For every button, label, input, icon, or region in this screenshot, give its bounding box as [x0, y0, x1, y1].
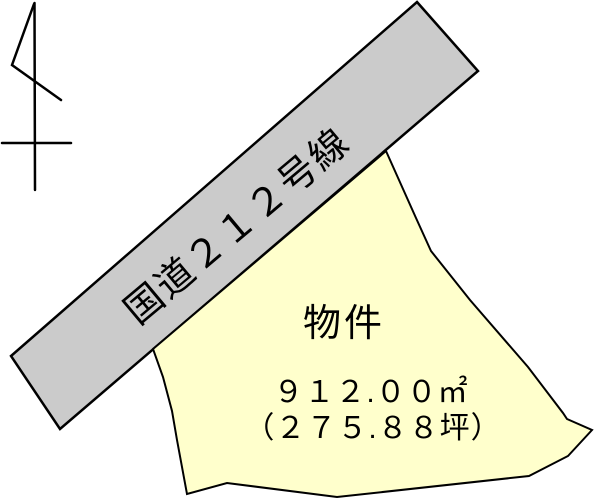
parcel-label: 物件: [303, 303, 385, 345]
north-arrow-shaft: [35, 3, 36, 190]
parcel-area-m2: ９１２.００㎡: [273, 376, 468, 409]
parcel-area-tsubo: （２７５.８８坪）: [244, 412, 501, 445]
land-plot-figure: 国道２１２号線 物件 ９１２.００㎡ （２７５.８８坪）: [0, 0, 600, 500]
plot-drawing: 国道２１２号線 物件 ９１２.００㎡ （２７５.８８坪）: [0, 0, 600, 500]
